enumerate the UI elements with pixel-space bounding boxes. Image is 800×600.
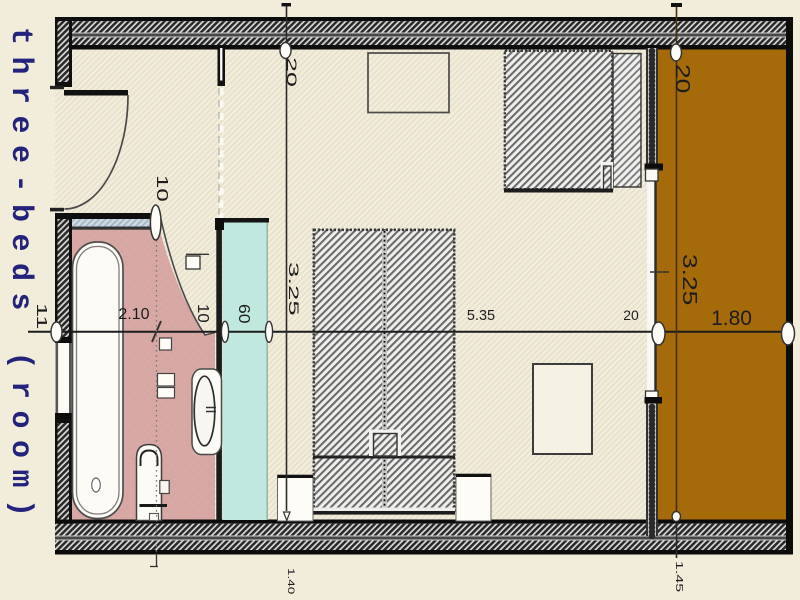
svg-text:5.35: 5.35 bbox=[467, 308, 495, 324]
svg-text:1.40: 1.40 bbox=[286, 568, 295, 594]
svg-text:20: 20 bbox=[284, 57, 300, 87]
svg-text:3.25: 3.25 bbox=[286, 262, 302, 316]
svg-text:2.10: 2.10 bbox=[118, 306, 149, 323]
svg-text:three-beds (room): three-beds (room) bbox=[3, 27, 37, 529]
svg-text:3.25: 3.25 bbox=[679, 254, 701, 305]
svg-text:20: 20 bbox=[672, 64, 694, 93]
svg-text:10: 10 bbox=[194, 304, 212, 323]
svg-text:20: 20 bbox=[623, 307, 639, 323]
svg-text:1.80: 1.80 bbox=[711, 307, 752, 330]
svg-text:1.45: 1.45 bbox=[674, 561, 685, 592]
svg-text:10: 10 bbox=[153, 175, 170, 202]
svg-text:60: 60 bbox=[235, 304, 253, 324]
